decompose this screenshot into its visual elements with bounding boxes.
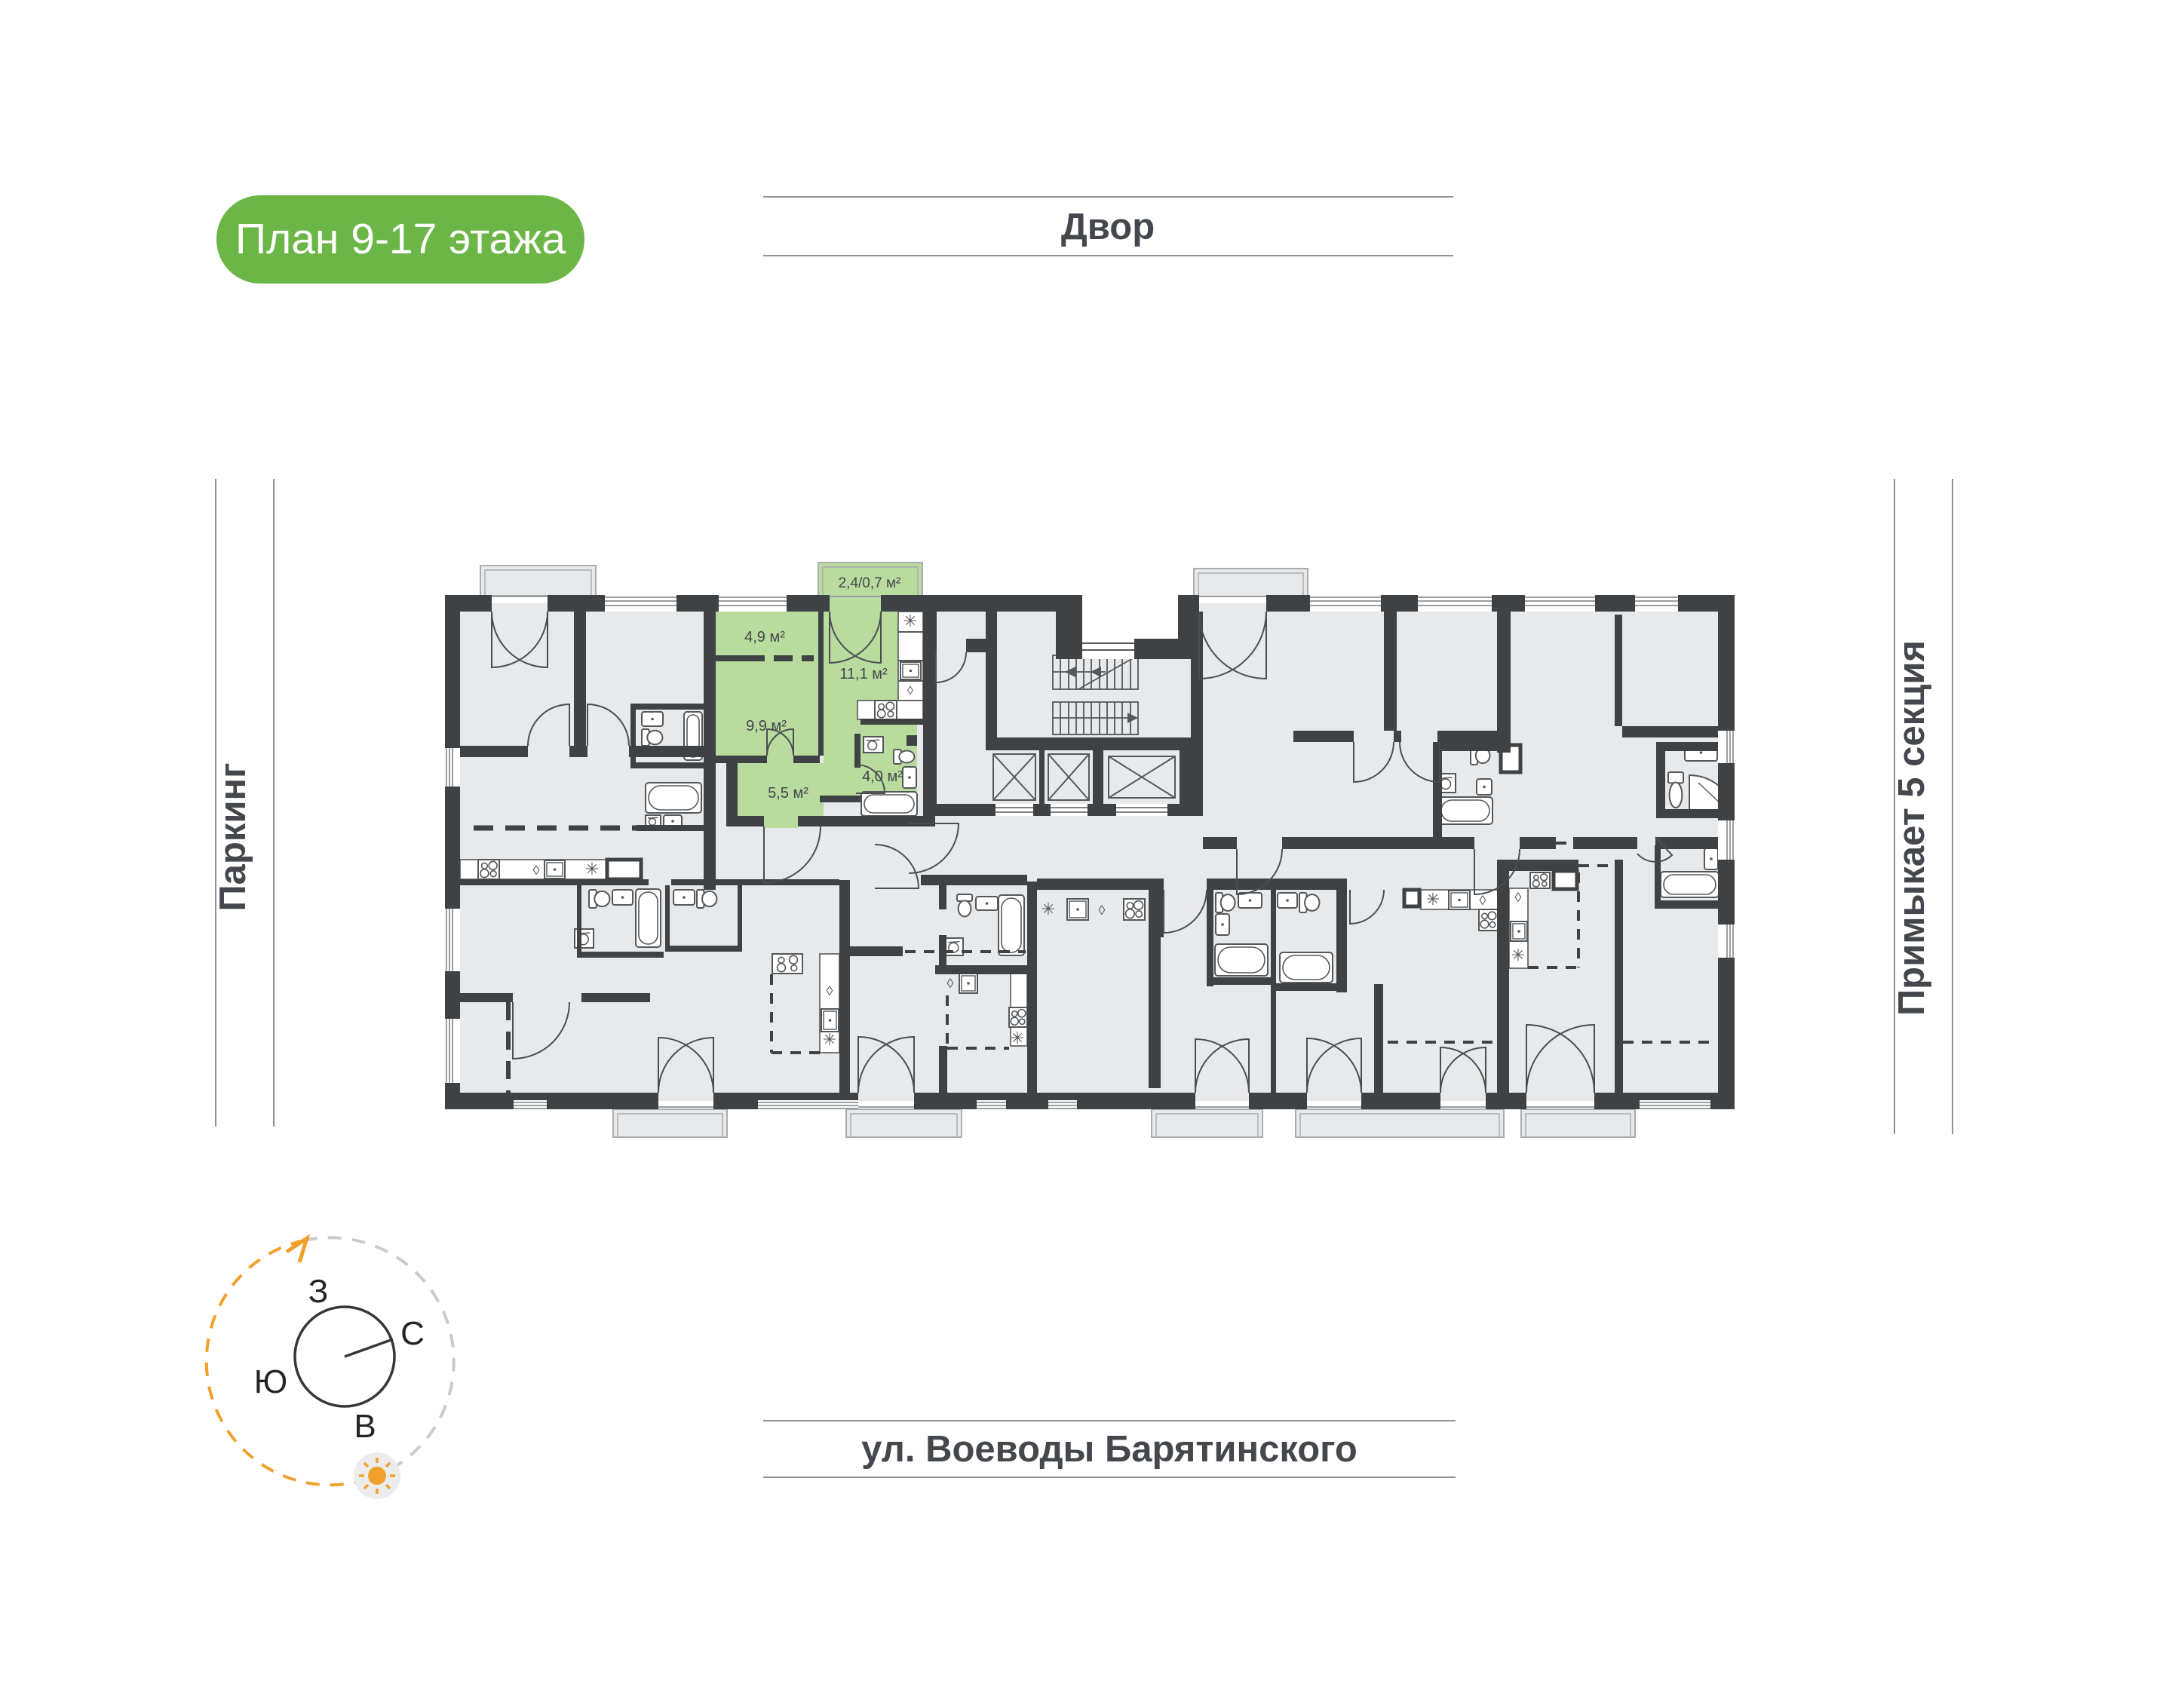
svg-text:◊: ◊ [827, 983, 833, 998]
svg-text:2,4/0,7 м²: 2,4/0,7 м² [839, 575, 901, 591]
svg-text:В: В [354, 1408, 376, 1445]
svg-text:◊: ◊ [947, 976, 954, 991]
svg-text:✳: ✳ [1042, 900, 1055, 918]
svg-text:◊: ◊ [1099, 903, 1106, 918]
svg-text:◊: ◊ [533, 863, 540, 878]
svg-text:С: С [400, 1315, 425, 1352]
svg-text:11,1 м²: 11,1 м² [839, 666, 888, 682]
svg-text:◊: ◊ [907, 685, 913, 698]
svg-text:4,9 м²: 4,9 м² [744, 629, 785, 645]
svg-text:Паркинг: Паркинг [213, 762, 253, 911]
svg-text:✳: ✳ [585, 860, 599, 879]
svg-text:✳: ✳ [1011, 1029, 1024, 1047]
svg-text:9,9 м²: 9,9 м² [746, 718, 787, 734]
svg-text:З: З [308, 1273, 329, 1310]
svg-text:◊: ◊ [1480, 893, 1486, 908]
svg-text:ул. Воеводы Барятинского: ул. Воеводы Барятинского [861, 1429, 1357, 1470]
svg-text:Двор: Двор [1061, 207, 1155, 247]
svg-text:5,5 м²: 5,5 м² [768, 785, 808, 802]
svg-text:План 9-17 этажа: План 9-17 этажа [235, 215, 566, 263]
svg-text:◊: ◊ [1515, 890, 1522, 905]
svg-text:✳: ✳ [823, 1030, 836, 1049]
svg-text:4,0 м²: 4,0 м² [862, 768, 903, 785]
svg-text:Ю: Ю [254, 1363, 287, 1400]
svg-text:Примыкает 5 секция: Примыкает 5 секция [1891, 640, 1932, 1016]
svg-text:✳: ✳ [903, 612, 917, 630]
svg-text:✳: ✳ [1426, 890, 1440, 909]
svg-text:✳: ✳ [1511, 946, 1525, 964]
